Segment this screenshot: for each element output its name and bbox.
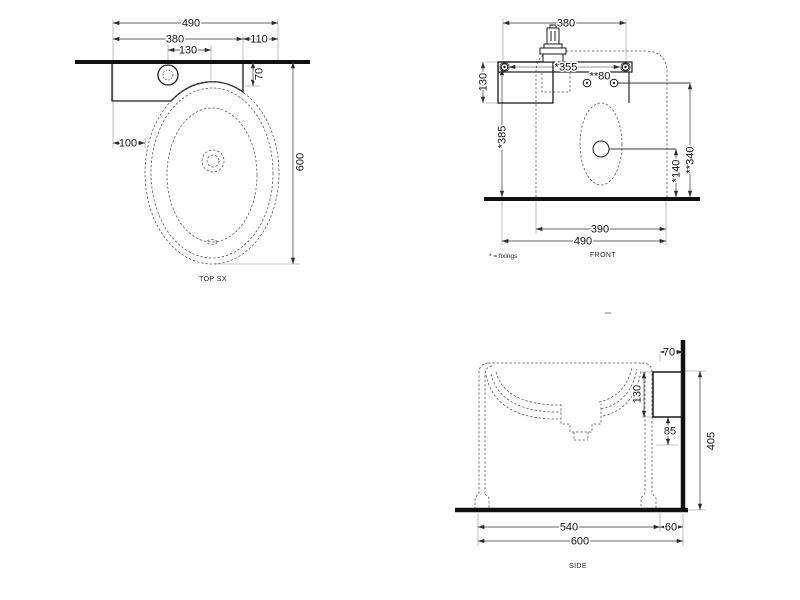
- dim-front-basin-width: 390: [591, 224, 609, 236]
- dim-top-left-offset: 100: [119, 138, 137, 150]
- front-dimensions: 380 *355 **80 130 *385 *140 **340 390 49…: [478, 18, 697, 248]
- view-label-top: TOP SX: [199, 276, 227, 283]
- fixings-note: * = fixings: [489, 253, 518, 260]
- front-view: 380 *355 **80 130 *385 *140 **340 390 49…: [478, 18, 701, 261]
- side-extension-lines: [478, 354, 706, 546]
- front-extension-lines: [486, 19, 666, 245]
- dim-top-overall-width: 490: [182, 18, 200, 30]
- dim-top-shelf-depth: 70: [254, 68, 266, 80]
- dim-front-bracket-width: *355: [555, 62, 578, 74]
- dim-front-fixing-height: *385: [497, 126, 509, 149]
- dim-front-tap-spacing: **80: [590, 71, 611, 83]
- drain-recess-front: [580, 103, 622, 185]
- top-dimensions: 490 380 110 130 100 70 600: [113, 18, 307, 265]
- basin-plan-outline: [145, 82, 279, 264]
- dim-side-rim-to-wall: 70: [663, 347, 675, 359]
- side-view: 70 130 85 405 540 60 600 SIDE: [455, 313, 718, 570]
- dim-side-wall-offset: 60: [665, 522, 677, 534]
- tap-block-front: [542, 73, 570, 92]
- dim-front-fixing-width: 380: [557, 18, 575, 30]
- dim-top-overall-depth: 600: [295, 153, 307, 171]
- drain-stub-side: [574, 432, 588, 440]
- top-extension-lines: [113, 19, 300, 264]
- dim-side-bracket-top-height: 405: [706, 432, 718, 450]
- dim-side-overall-depth: 600: [571, 536, 589, 548]
- top-view: 490 380 110 130 100 70 600 TOP SX: [75, 18, 310, 284]
- dim-side-bracket-height: 130: [632, 385, 644, 403]
- basin-profile-side: [475, 363, 656, 509]
- faucet-front: [540, 25, 566, 62]
- drain-recess-side: [561, 404, 601, 432]
- drain-hole-plan: [202, 150, 224, 172]
- view-label-front: FRONT: [590, 252, 616, 259]
- drawing-sheet: 490 380 110 130 100 70 600 TOP SX: [0, 0, 800, 600]
- dim-front-tap-height: **340: [685, 147, 697, 174]
- tap-hole: [158, 65, 178, 85]
- technical-drawing: 490 380 110 130 100 70 600 TOP SX: [0, 0, 800, 600]
- dim-top-tap-offset: 130: [179, 45, 197, 57]
- dim-side-clearance: 85: [664, 426, 676, 438]
- view-label-side: SIDE: [569, 563, 587, 570]
- dim-front-drain-height: *140: [671, 160, 683, 183]
- dim-top-right-offset: 110: [250, 34, 268, 46]
- dim-side-basin-depth: 540: [560, 522, 578, 534]
- dim-front-overall-width: 490: [574, 236, 592, 248]
- tap-hole-inner: [163, 70, 173, 80]
- dim-front-shelf-height: 130: [478, 73, 490, 91]
- drain-hole-front: [593, 141, 609, 157]
- wall-bracket-side: [653, 372, 682, 417]
